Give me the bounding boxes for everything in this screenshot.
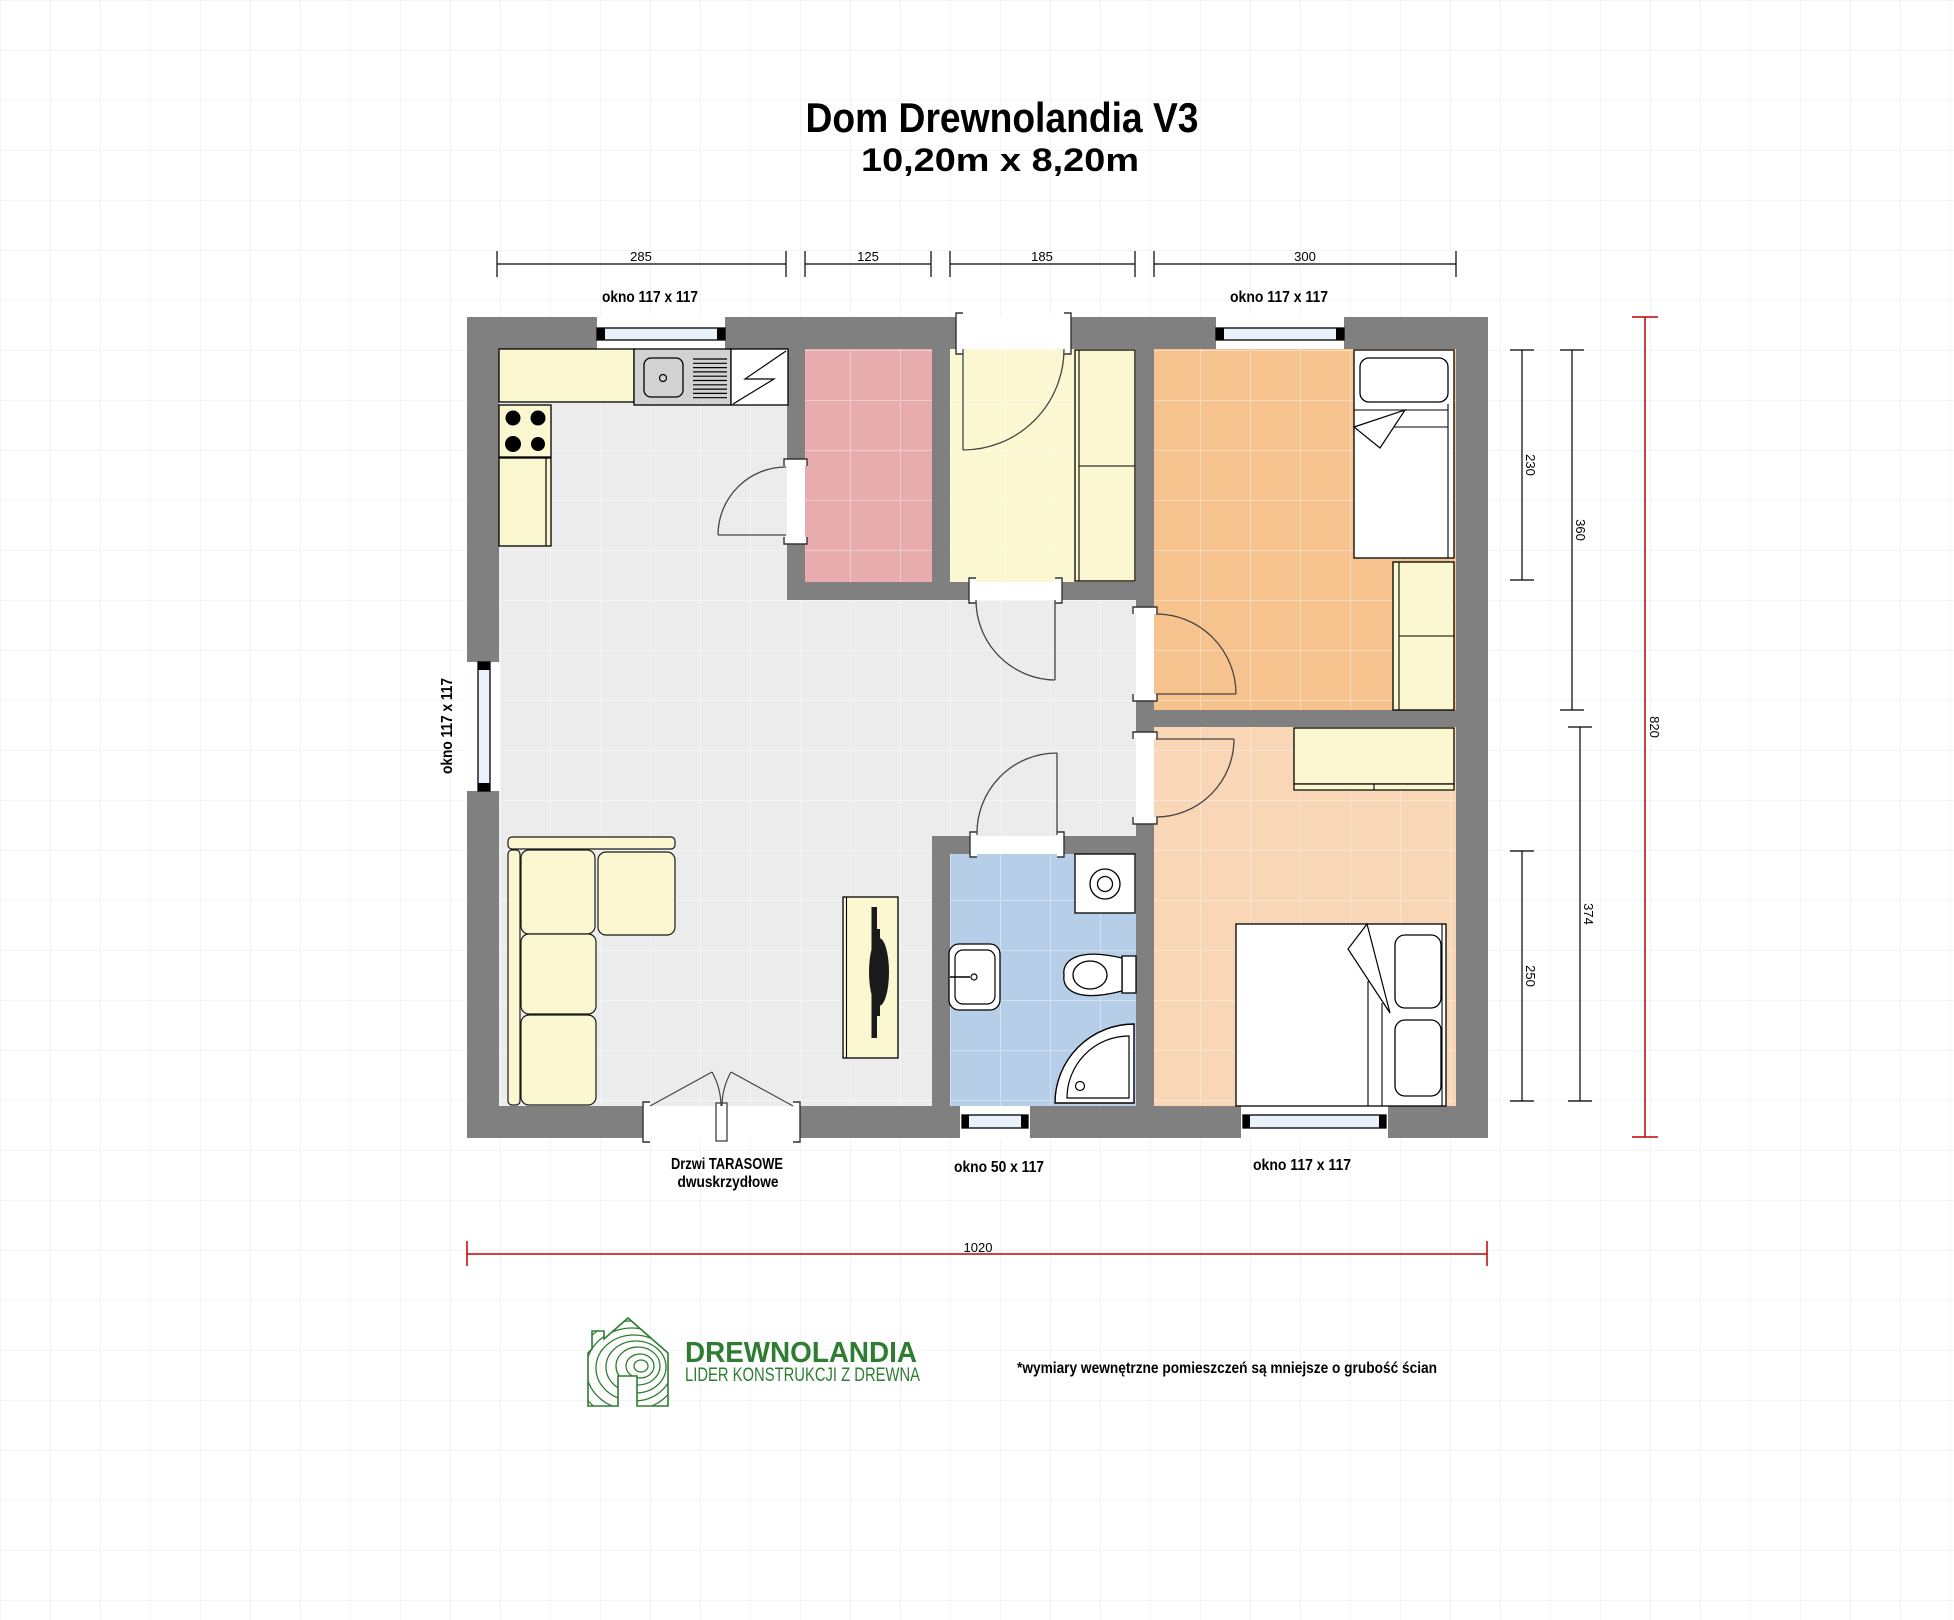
svg-text:Drzwi TARASOWE: Drzwi TARASOWE [671, 1156, 783, 1173]
svg-text:185: 185 [1031, 249, 1053, 264]
svg-text:LIDER KONSTRUKCJI Z DREWNA: LIDER KONSTRUKCJI Z DREWNA [685, 1365, 920, 1386]
svg-text:dwuskrzydłowe: dwuskrzydłowe [678, 1174, 779, 1191]
svg-text:820: 820 [1647, 716, 1662, 738]
svg-text:okno 117 x 117: okno 117 x 117 [439, 678, 456, 774]
svg-text:Dom Drewnolandia V3: Dom Drewnolandia V3 [806, 94, 1199, 141]
svg-text:250: 250 [1523, 965, 1538, 987]
svg-text:okno 117 x 117: okno 117 x 117 [602, 289, 698, 306]
svg-text:okno 117 x 117: okno 117 x 117 [1253, 1157, 1351, 1174]
svg-text:374: 374 [1581, 903, 1596, 925]
svg-text:okno 50 x 117: okno 50 x 117 [954, 1159, 1044, 1176]
svg-text:okno 117 x 117: okno 117 x 117 [1230, 289, 1328, 306]
svg-text:300: 300 [1294, 249, 1316, 264]
svg-text:360: 360 [1573, 519, 1588, 541]
svg-text:10,20m x 8,20m: 10,20m x 8,20m [861, 142, 1139, 178]
svg-text:285: 285 [630, 249, 652, 264]
svg-text:1020: 1020 [964, 1240, 993, 1255]
svg-text:125: 125 [857, 249, 879, 264]
svg-text:*wymiary wewnętrzne pomieszcze: *wymiary wewnętrzne pomieszczeń są mniej… [1017, 1360, 1437, 1377]
svg-text:230: 230 [1523, 454, 1538, 476]
